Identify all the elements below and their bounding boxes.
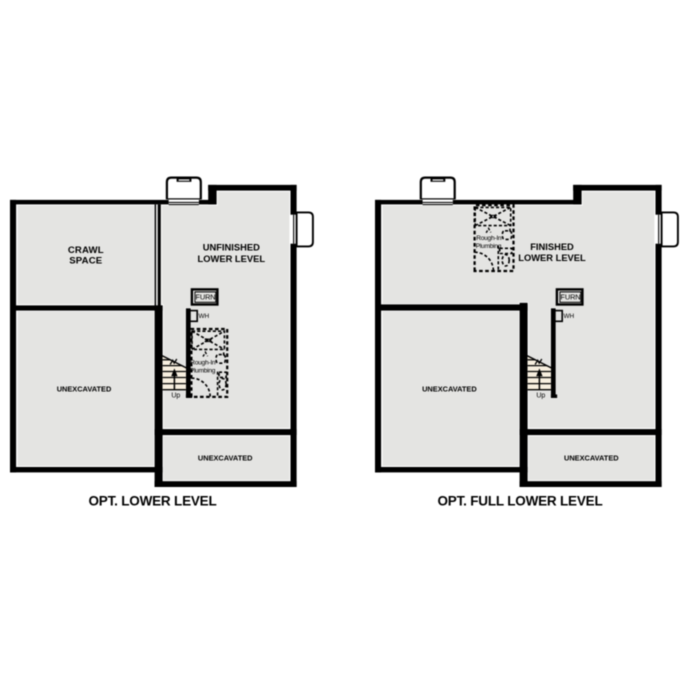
svg-text:FURN: FURN: [560, 292, 580, 301]
svg-text:Plumbing: Plumbing: [190, 367, 216, 374]
svg-text:FURN: FURN: [195, 292, 215, 301]
svg-text:Rough-In: Rough-In: [190, 359, 216, 366]
svg-text:UNEXCAVATED: UNEXCAVATED: [57, 384, 112, 393]
svg-text:UNEXCAVATED: UNEXCAVATED: [564, 454, 619, 463]
svg-text:Up: Up: [171, 392, 180, 399]
svg-text:UNEXCAVATED: UNEXCAVATED: [422, 384, 477, 393]
svg-text:CRAWL: CRAWL: [68, 245, 104, 256]
svg-text:Rough-In: Rough-In: [476, 235, 502, 242]
svg-text:Up: Up: [536, 392, 545, 399]
svg-text:WH: WH: [199, 313, 210, 320]
svg-text:LOWER LEVEL: LOWER LEVEL: [518, 253, 586, 263]
svg-text:WH: WH: [564, 313, 575, 320]
svg-text:UNFINISHED: UNFINISHED: [203, 242, 260, 252]
svg-text:LOWER LEVEL: LOWER LEVEL: [198, 254, 266, 264]
svg-text:OPT. LOWER LEVEL: OPT. LOWER LEVEL: [88, 493, 216, 508]
svg-text:FINISHED: FINISHED: [530, 242, 574, 252]
svg-text:UNEXCAVATED: UNEXCAVATED: [198, 454, 253, 463]
svg-text:SPACE: SPACE: [69, 256, 103, 267]
svg-text:Plumbing: Plumbing: [476, 243, 502, 250]
svg-text:OPT. FULL LOWER LEVEL: OPT. FULL LOWER LEVEL: [437, 493, 602, 508]
